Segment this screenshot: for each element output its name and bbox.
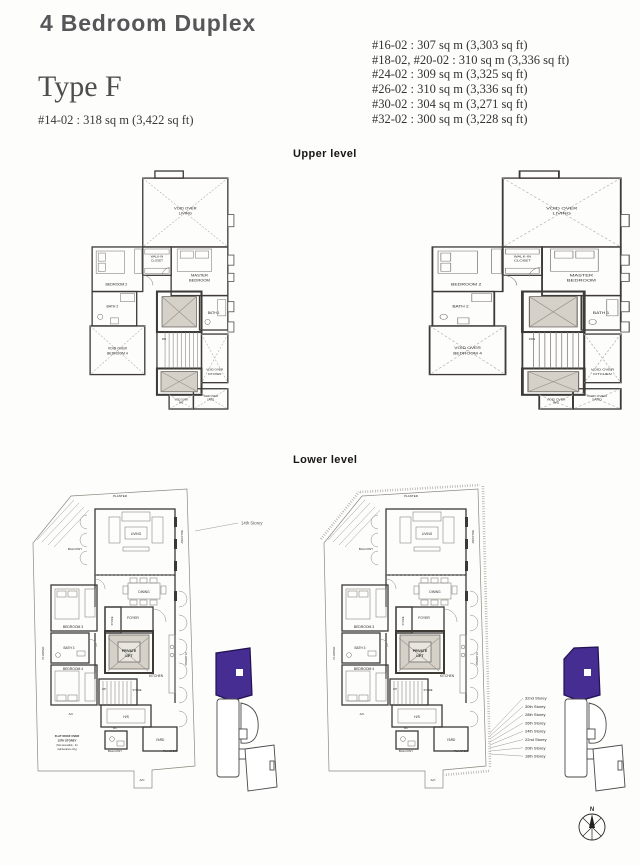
flat-roof-note: FLAT ROOF OVER 13TH STOREY (Not accessib… — [55, 734, 80, 751]
storey-label: 20th Storey — [525, 745, 545, 750]
unit-area-item: #32-02 : 300 sq m (3,228 sq ft) — [372, 112, 569, 127]
room-label-hs: H/S — [123, 715, 129, 719]
room-label-bedroom2: BEDROOM 2 — [451, 282, 482, 286]
plan: PLANTER BALCONY BALCONY LIVING DINING BE… — [321, 485, 490, 788]
room-label-hs: H/S — [414, 715, 420, 719]
label-planter-top: PLANTER — [404, 494, 419, 498]
room-label-living: LIVING — [422, 532, 433, 536]
label-balcony-bottom: BALCONY — [108, 749, 122, 753]
svg-text:maintenance only): maintenance only) — [57, 748, 77, 751]
room-label-bedroom4: BEDROOM 4 — [354, 667, 374, 671]
label-balcony-bottom: BALCONY — [399, 749, 413, 753]
room-label-bedroom3: BEDROOM 3 — [63, 625, 83, 629]
room-label-yard: YARD — [447, 738, 456, 742]
room-label-store2: STORE — [424, 688, 433, 692]
keyplan-unit-highlight — [216, 648, 252, 707]
room-label-walk-in-closet: CLOSET — [151, 259, 163, 263]
keyplan-void — [584, 669, 591, 676]
room-label-void-living: LIVING — [179, 211, 192, 216]
upper-level-label: Upper level — [293, 148, 357, 160]
room-label-private-lift: LIFT — [416, 654, 424, 658]
stairs-up-label: UP — [393, 687, 397, 691]
room-label-void-wc: WC — [179, 401, 183, 404]
room-label-yard: YARD — [156, 738, 165, 742]
room-label-wc: WC — [113, 727, 117, 730]
room-label-void-bedroom4: BEDROOM 4 — [453, 351, 482, 355]
svg-text:(Not accessible - for: (Not accessible - for — [56, 744, 77, 747]
room-label-void-bedroom4: VOID OVER — [108, 346, 128, 350]
storey-label: 26th Storey — [525, 720, 545, 725]
room-label-void-yard: VOID OVER — [203, 394, 218, 398]
storey-label: 24th Storey — [525, 729, 545, 734]
svg-text:FLAT ROOF OVER: FLAT ROOF OVER — [55, 734, 80, 738]
storey-label: 22nd Storey — [525, 737, 547, 742]
room-label-bath3: BATH 3 — [64, 646, 75, 650]
label-planter-left: PLANTER — [41, 647, 45, 660]
lift-shafts — [161, 297, 197, 392]
room-label-private-lift: LIFT — [125, 654, 133, 658]
room-label-bedroom3: BEDROOM 3 — [354, 625, 374, 629]
type-label: Type F — [38, 70, 122, 104]
room-label-kitchen: KITCHEN — [149, 674, 164, 678]
room-label-master-bedroom: MASTER — [570, 273, 594, 278]
keyplan-buildings — [565, 699, 625, 791]
ledges — [228, 215, 234, 332]
label-planter-top: PLANTER — [113, 494, 128, 498]
room-label-dining: DINING — [138, 590, 150, 594]
unit-area-item: #30-02 : 304 sq m (3,271 sq ft) — [372, 97, 569, 112]
storey-annotations: 32nd Storey 30th Storey 28th Storey 26th… — [490, 696, 547, 759]
label-planter-right: PLANTER — [184, 653, 188, 666]
label-ac-left: A/C — [360, 712, 365, 716]
room-label-master-bedroom: BEDROOM — [567, 278, 596, 283]
room-label-bath2: BATH 2 — [106, 305, 118, 309]
room-label-void-living: VOID OVER — [546, 206, 578, 211]
label-planter-right: PLANTER — [475, 653, 479, 666]
unit-area-list: #16-02 : 307 sq m (3,303 sq ft) #18-02, … — [372, 38, 569, 126]
room-label-store2: STORE — [133, 688, 142, 692]
label-planter-left: PLANTER — [332, 647, 336, 660]
ledges — [621, 215, 629, 332]
upper-left-floorplan: VOID OVER LIVING WALK-IN CLOSET MASTER B… — [86, 170, 236, 409]
lower-left-floorplan: PLANTER BALCONY BALCONY LIVING DINING BE… — [25, 483, 290, 813]
room-label-bedroom2: BEDROOM 2 — [106, 282, 128, 286]
planter-hatch — [37, 500, 89, 547]
primary-unit-area: #14-02 : 318 sq m (3,422 sq ft) — [38, 113, 194, 128]
room-label-void-wc: WC — [553, 401, 559, 404]
storey-label: 32nd Storey — [525, 696, 547, 701]
room-label-foyer: FOYER — [127, 616, 139, 620]
lower-level-label: Lower level — [293, 454, 357, 466]
keyplan-left — [216, 648, 277, 791]
room-label-private-lift: PRIVATE — [413, 649, 428, 653]
unit-area-item: #24-02 : 309 sq m (3,325 sq ft) — [372, 67, 569, 82]
room-label-void-kitchen: KITCHEN — [208, 372, 221, 376]
room-label-store: STORE — [110, 616, 114, 625]
room-label-void-kitchen: VOID OVER — [206, 368, 224, 372]
floorplan-page: 4 Bedroom Duplex Type F #14-02 : 318 sq … — [0, 0, 640, 865]
room-label-walk-in-closet: CLOSET — [514, 259, 532, 262]
room-label-void-kitchen: VOID OVER — [591, 368, 615, 371]
room-label-void-bedroom4: VOID OVER — [454, 346, 481, 350]
room-label-kitchen: KITCHEN — [440, 674, 455, 678]
unit-area-item: #16-02 : 307 sq m (3,303 sq ft) — [372, 38, 569, 53]
room-label-void-yard: YARD — [592, 398, 603, 401]
page-title: 4 Bedroom Duplex — [40, 10, 256, 37]
unit-area-item: #18-02, #20-02 : 310 sq m (3,336 sq ft) — [372, 53, 569, 68]
keyplan-unit-highlight — [564, 647, 600, 707]
stairs-up-label: UP — [102, 687, 106, 691]
storey14-leader — [195, 523, 238, 531]
room-label-void-living: LIVING — [553, 211, 572, 216]
keyplan-void — [236, 669, 243, 676]
label-ac-bottom: A/C — [430, 778, 436, 782]
label-balcony-right: BALCONY — [471, 530, 475, 544]
storey14-label: 14th Storey — [241, 521, 263, 526]
room-label-foyer: FOYER — [418, 616, 430, 620]
label-planter-bottom: PLANTER — [454, 749, 469, 753]
unit-area-item: #26-02 : 310 sq m (3,336 sq ft) — [372, 82, 569, 97]
walls — [430, 171, 621, 409]
label-balcony-left: BALCONY — [68, 547, 82, 551]
upper-right-floorplan: VOID OVER LIVING WALK-IN CLOSET MASTER B… — [424, 170, 632, 409]
room-label-dining: DINING — [429, 590, 441, 594]
keyplan-buildings — [217, 699, 277, 791]
room-label-master-bedroom: BEDROOM — [189, 277, 211, 282]
room-label-living: LIVING — [131, 532, 142, 536]
room-label-bath2: BATH 2 — [452, 304, 469, 308]
label-planter-bottom: PLANTER — [163, 749, 178, 753]
room-label-void-yard: YARD — [207, 397, 214, 401]
storey-label: 18th Storey — [525, 754, 545, 759]
storey-label: 30th Storey — [525, 704, 545, 709]
room-label-bath1: BATH 1 — [208, 311, 220, 315]
label-ac-bottom: A/C — [139, 778, 145, 782]
room-label-bath1: BATH 1 — [593, 310, 610, 314]
room-label-bath3: BATH 3 — [355, 646, 366, 650]
room-label-walk-in-closet: WALK-IN — [514, 255, 532, 258]
storey-label: 28th Storey — [525, 712, 545, 717]
stairs-dn-label: DN — [162, 337, 166, 341]
label-balcony-left: BALCONY — [359, 547, 373, 551]
label-balcony-right: BALCONY — [180, 530, 184, 544]
room-label-bedroom4: BEDROOM 4 — [63, 667, 83, 671]
lower-right-floorplan: PLANTER BALCONY BALCONY LIVING DINING BE… — [308, 483, 640, 845]
stairs-dn-label: DN — [529, 338, 535, 341]
room-label-void-kitchen: KITCHEN — [593, 373, 612, 376]
label-ac-left: A/C — [69, 712, 74, 716]
planter-hatch — [328, 500, 380, 547]
room-label-void-bedroom4: BEDROOM 4 — [107, 351, 128, 355]
room-label-wc: WC — [404, 727, 408, 730]
north-needle — [589, 814, 595, 828]
room-label-store: STORE — [401, 616, 405, 625]
compass-n-label: N — [590, 807, 594, 813]
svg-text:13TH STOREY: 13TH STOREY — [57, 739, 76, 743]
keyplan-right — [564, 647, 625, 791]
lift-shafts — [528, 297, 579, 392]
room-label-private-lift: PRIVATE — [122, 649, 137, 653]
compass: N — [579, 807, 605, 840]
